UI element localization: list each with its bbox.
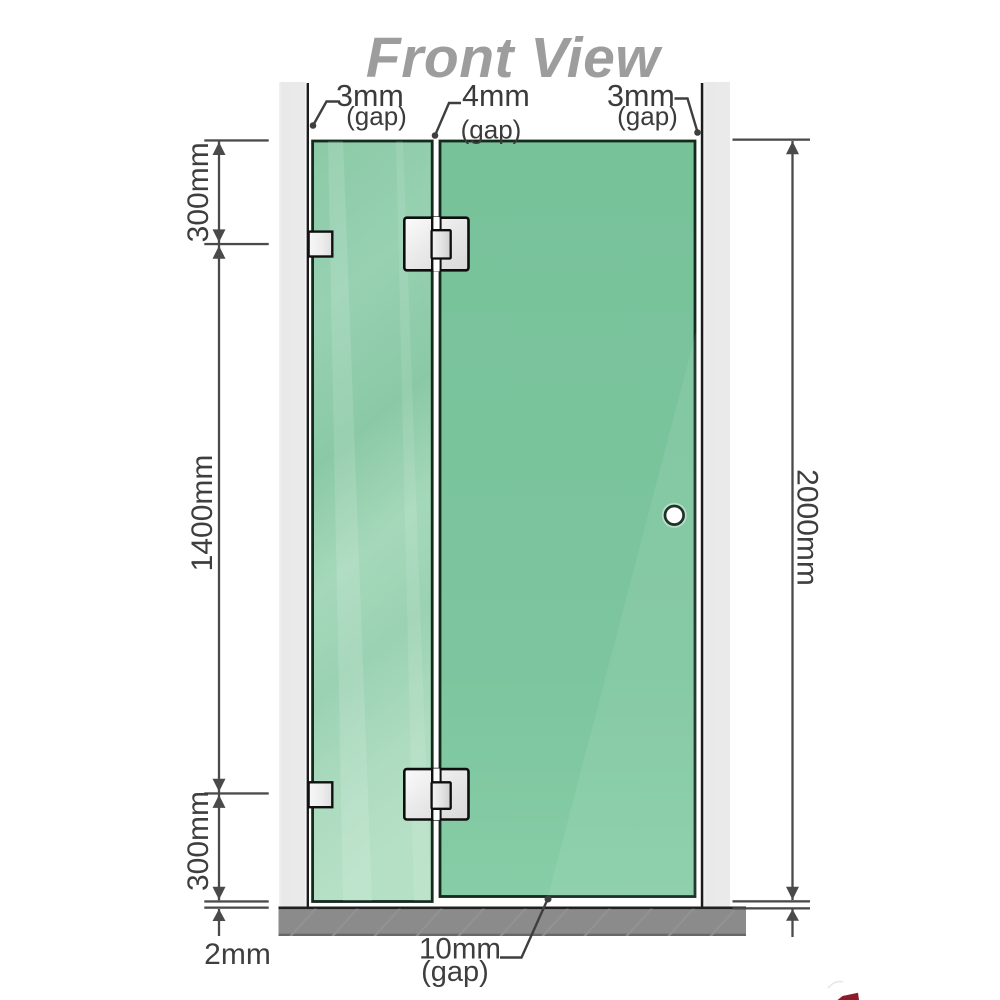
svg-text:300mm: 300mm — [182, 791, 215, 891]
svg-text:2000mm: 2000mm — [791, 469, 824, 586]
svg-text:300mm: 300mm — [182, 142, 215, 242]
svg-text:4mm: 4mm — [462, 79, 530, 113]
svg-text:(gap): (gap) — [346, 101, 407, 131]
svg-text:2mm: 2mm — [204, 938, 271, 971]
svg-text:(gap): (gap) — [421, 956, 489, 988]
svg-text:1400mm: 1400mm — [186, 455, 219, 572]
svg-text:(gap): (gap) — [461, 115, 522, 145]
svg-text:(gap): (gap) — [617, 101, 678, 131]
